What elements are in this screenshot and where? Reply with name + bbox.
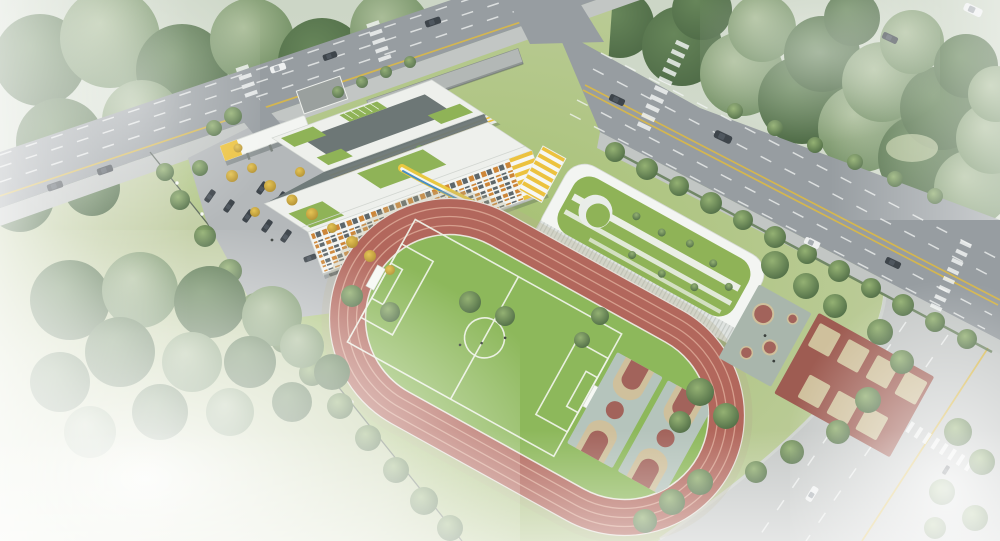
aerial-campus-rendering: [0, 0, 1000, 541]
